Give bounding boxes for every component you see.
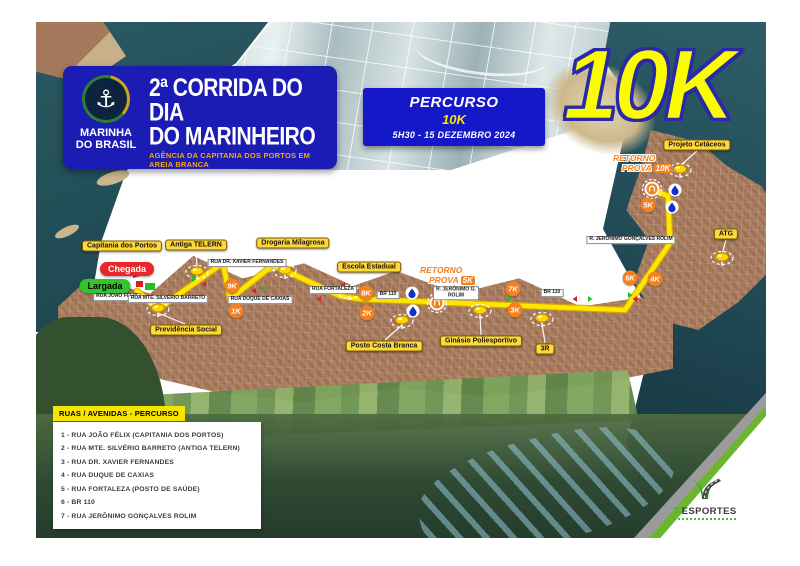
navy-logo-block: ⚓ MARINHA DO BRASIL <box>63 66 149 169</box>
finish-gate-icon <box>136 281 143 287</box>
legend-street-2: 2 - RUA MTE. SILVÉRIO BARRETO (ANTIGA TE… <box>61 442 253 455</box>
street-sign-jeronimo: R. JERÔNIMO G. ROLIM <box>433 286 479 300</box>
race-info-schedule: 5H30 - 15 DEZEMBRO 2024 <box>393 130 516 140</box>
event-title: 2ª CORRIDA DO DIA DO MARINHEIRO <box>149 77 333 150</box>
turnaround-10k-label: RETORNO PROVA 10K <box>613 154 672 174</box>
legend-street-1: 1 - RUA JOÃO FÉLIX (CAPITANIA DOS PORTOS… <box>61 429 253 442</box>
start-gate-icon <box>145 283 155 290</box>
km-marker-6k: 6K <box>623 271 638 286</box>
road-wings-icon <box>688 477 722 501</box>
street-sign-br110-east: BR 110 <box>541 289 564 297</box>
km-marker-7k: 7K <box>506 282 521 297</box>
km-marker-3k: 3K <box>508 303 523 318</box>
street-sign-br110: BR 110 <box>377 291 400 299</box>
street-sign-silverio: RUA MTE. SILVÉRIO BARRETO <box>128 295 208 303</box>
km-marker-9k: 9K <box>225 279 240 294</box>
street-sign-fortaleza: RUA FORTALEZA <box>309 286 357 294</box>
organizer-logo: T.ESPORTES <box>662 477 748 520</box>
place-label-atg: ATG <box>714 229 738 240</box>
street-sign-xavier: RUA DR. XAVIER FERNANDES <box>208 259 287 267</box>
place-label-drogaria: Drogaria Milagrosa <box>256 238 329 249</box>
anchor-icon: ⚓ <box>95 85 117 113</box>
start-label: Largada <box>79 279 130 293</box>
race-info-box: PERCURSO 10K 5H30 - 15 DEZEMBRO 2024 <box>363 88 545 146</box>
turnaround-5k-label: RETORNO PROVA 5K <box>420 266 475 286</box>
place-label-capitania: Capitania dos Portos <box>82 241 162 252</box>
place-label-ginasio: Ginásio Poliesportivo <box>440 336 522 347</box>
navy-emblem: ⚓ <box>82 75 130 123</box>
start-finish-markers <box>133 274 155 290</box>
legend-street-list: 1 - RUA JOÃO FÉLIX (CAPITANIA DOS PORTOS… <box>53 422 261 529</box>
race-course-poster: T.ESPORTES <box>0 0 800 566</box>
place-label-3r: 3R <box>536 344 555 355</box>
legend-street-4: 4 - RUA DUQUE DE CAXIAS <box>61 469 253 482</box>
km-marker-2k: 2K <box>360 306 375 321</box>
organizer-name: T.ESPORTES <box>662 506 748 517</box>
race-info-label: PERCURSO <box>409 94 498 111</box>
place-label-posto: Posto Costa Branca <box>346 341 423 352</box>
finish-label: Chegada <box>100 262 154 276</box>
race-info-distance: 10K <box>442 112 466 127</box>
legend-street-3: 3 - RUA DR. XAVIER FERNANDES <box>61 456 253 469</box>
legend-street-7: 7 - RUA JERÔNIMO GONÇALVES ROLIM <box>61 510 253 523</box>
legend-street-5: 5 - RUA FORTALEZA (POSTO DE SAÚDE) <box>61 483 253 496</box>
event-subtitle: AGÊNCIA DA CAPITANIA DOS PORTOS EM AREIA… <box>149 151 333 169</box>
place-label-previdencia: Previdência Social <box>150 325 222 336</box>
km-marker-8k: 8K <box>359 286 374 301</box>
km-marker-1k: 1K <box>229 304 244 319</box>
event-title-block: 2ª CORRIDA DO DIA DO MARINHEIRO AGÊNCIA … <box>149 66 337 169</box>
organization-name: MARINHA DO BRASIL <box>76 128 137 151</box>
place-label-antiga-telern: Antiga TELERN <box>165 240 227 251</box>
place-label-projeto: Projeto Cetáceos <box>663 140 730 151</box>
street-sign-jeronimo-ne: R. JERÔNIMO GONÇALVES ROLIM <box>586 236 675 244</box>
km-marker-4k: 4K <box>648 272 663 287</box>
event-header: ⚓ MARINHA DO BRASIL 2ª CORRIDA DO DIA DO… <box>63 66 337 169</box>
distance-overlay: 10K <box>563 40 731 130</box>
legend-street-6: 6 - BR 110 <box>61 496 253 509</box>
legend-title: RUAS / AVENIDAS - PERCURSO <box>53 406 185 421</box>
place-label-escola: Escola Estadual <box>337 262 401 273</box>
km-marker-5k: 5K <box>641 198 656 213</box>
organizer-tagline-rule <box>674 518 736 520</box>
